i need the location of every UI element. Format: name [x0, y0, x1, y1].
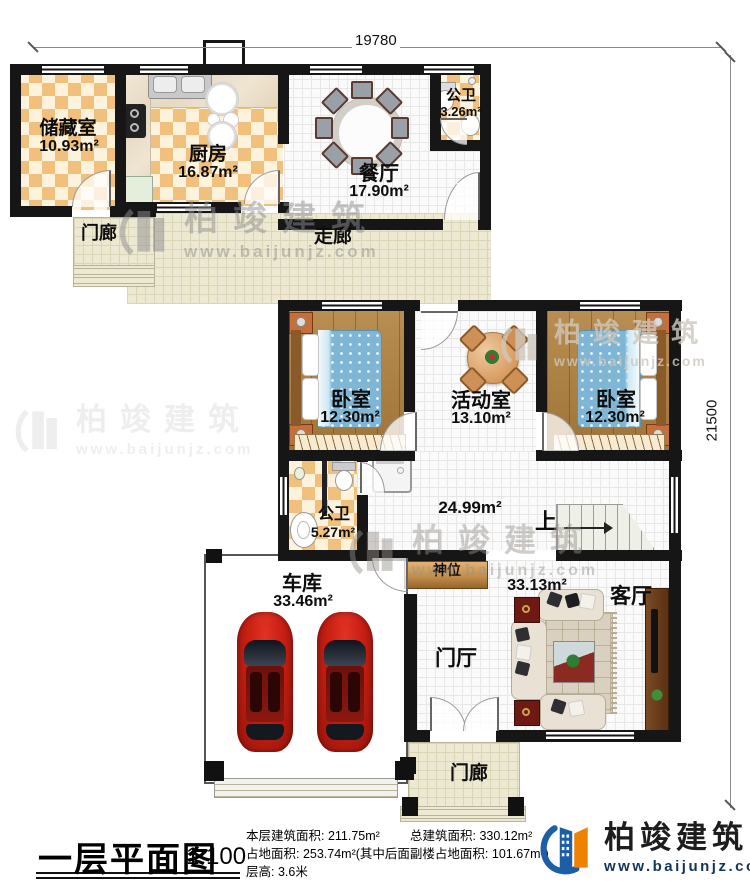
watermark: 柏竣建筑 www.baijunjz.com [14, 404, 253, 458]
floor-plan-canvas: 19780 21500 [0, 0, 750, 884]
kitchen-stove [124, 104, 146, 138]
wall [536, 311, 547, 412]
car [317, 612, 373, 752]
wall [430, 64, 441, 151]
dining-chair [391, 117, 409, 139]
stairs-arrow [564, 527, 606, 529]
wall [404, 311, 415, 412]
column [204, 761, 224, 781]
window [310, 64, 362, 75]
side-table [514, 700, 540, 726]
wall [669, 300, 681, 477]
room-area-garage: 33.46m² [273, 594, 333, 611]
rug-fringe [611, 610, 617, 714]
room-area-living: 33.13m² [507, 578, 567, 595]
wall [404, 550, 417, 558]
toilet [335, 470, 353, 491]
company-logo-name: 柏竣建筑 [604, 822, 750, 853]
watermark-url: www.baijunjz.com [76, 441, 253, 458]
room-label-bedroom-right: 卧室 [596, 390, 636, 411]
window [278, 477, 289, 515]
room-label-porch-top: 门廊 [81, 224, 117, 243]
company-logo-url: www.baijunjz.com [604, 858, 750, 875]
window [424, 64, 474, 75]
sofa-pillow [515, 627, 530, 642]
table-plant [484, 349, 500, 365]
dimension-line-right [730, 55, 731, 808]
wall [115, 64, 126, 213]
stat-total-area: 总建筑面积: 330.12m² [410, 825, 532, 844]
room-label-foyer: 门厅 [435, 648, 477, 670]
dining-chair [315, 117, 333, 139]
room-label-shrine: 神位 [433, 563, 461, 578]
wall [404, 730, 430, 742]
room-label-storage: 储藏室 [39, 119, 96, 139]
column [402, 797, 418, 816]
room-area-bath-top: 3.26m² [440, 105, 481, 119]
wall [458, 300, 580, 311]
column [400, 757, 416, 774]
bed-headboard [656, 330, 666, 426]
room-area-kitchen: 16.87m² [178, 165, 238, 182]
wall [10, 64, 21, 217]
room-label-corridor: 走廊 [314, 227, 352, 247]
window [42, 64, 104, 75]
kitchen-fridge [123, 176, 153, 204]
window [546, 730, 634, 742]
wall [357, 453, 368, 462]
dimension-top-label: 19780 [352, 32, 400, 49]
garage-door-strip [214, 778, 398, 798]
wall [278, 64, 289, 144]
window [157, 202, 211, 213]
dimension-right-label: 21500 [703, 397, 720, 445]
towel-hook [468, 77, 476, 85]
wall [115, 202, 157, 213]
wall [211, 202, 241, 213]
kitchen-bowl [206, 83, 238, 115]
company-logo-icon [538, 820, 596, 876]
wall [404, 594, 417, 742]
sofa-pillow [579, 593, 596, 610]
bed-pillow [302, 334, 319, 376]
wall [382, 300, 420, 311]
stairs-up-label: 上 [535, 510, 557, 533]
column [206, 549, 222, 563]
room-label-porch-bottom: 门廊 [450, 764, 488, 784]
window [140, 64, 188, 75]
window [669, 477, 681, 533]
room-label-living: 客厅 [610, 586, 652, 608]
room-label-garage: 车库 [282, 574, 322, 595]
wall [634, 730, 681, 742]
room-label-kitchen: 厨房 [189, 145, 227, 165]
room-label-bedroom-left: 卧室 [331, 390, 371, 411]
room-area-bedroom-right: 12.30m² [585, 410, 645, 427]
stairs-arrowhead [604, 522, 613, 534]
wall [10, 206, 72, 217]
wall [496, 730, 546, 742]
stat-storey-height: 层高: 3.6米 [246, 861, 308, 880]
tv-screen [651, 609, 658, 673]
watermark-brand: 柏竣建筑 [76, 404, 253, 435]
room-area-bedroom-left: 12.30m² [320, 410, 380, 427]
room-area-dining: 17.90m² [349, 184, 409, 201]
plan-scale: 1:100 [186, 843, 246, 871]
wall [357, 495, 368, 550]
room-label-activity: 活动室 [451, 391, 511, 412]
kitchen-sink [148, 71, 212, 99]
sofa-pillow [568, 700, 585, 717]
bed-headboard [291, 330, 301, 426]
side-table [514, 597, 540, 623]
window [580, 300, 640, 311]
window [322, 300, 382, 311]
ceiling-lamp [294, 467, 305, 480]
wall [536, 450, 682, 461]
company-logo: 柏竣建筑 www.baijunjz.com [538, 820, 750, 876]
wall [669, 533, 681, 742]
car [237, 612, 293, 752]
room-area-bath-mid: 5.27m² [311, 525, 355, 540]
room-area-hall: 24.99m² [438, 499, 501, 517]
wall [556, 550, 682, 561]
wall [278, 219, 443, 230]
plant [651, 689, 663, 701]
table-plant [565, 653, 581, 669]
bed-pillow [302, 378, 319, 420]
bed-pillow [640, 334, 657, 376]
dining-chair [351, 81, 373, 99]
stat-land-area: 占地面积: 253.74m²(其中后面副楼占地面积: 101.67m²) [246, 843, 549, 862]
room-label-bath-mid: 公卫 [318, 507, 350, 524]
steps-porch-top [73, 265, 155, 287]
room-area-activity: 13.10m² [451, 411, 511, 428]
sofa-pillow [515, 644, 532, 661]
room-label-bath-top: 公卫 [446, 88, 476, 104]
watermark-logo-icon [14, 405, 66, 457]
stat-floor-area: 本层建筑面积: 211.75m² [246, 825, 380, 844]
room-area-storage: 10.93m² [39, 139, 99, 156]
column [508, 797, 524, 816]
tv-cabinet [645, 588, 669, 734]
room-label-dining: 餐厅 [359, 164, 399, 185]
wall [278, 450, 415, 461]
